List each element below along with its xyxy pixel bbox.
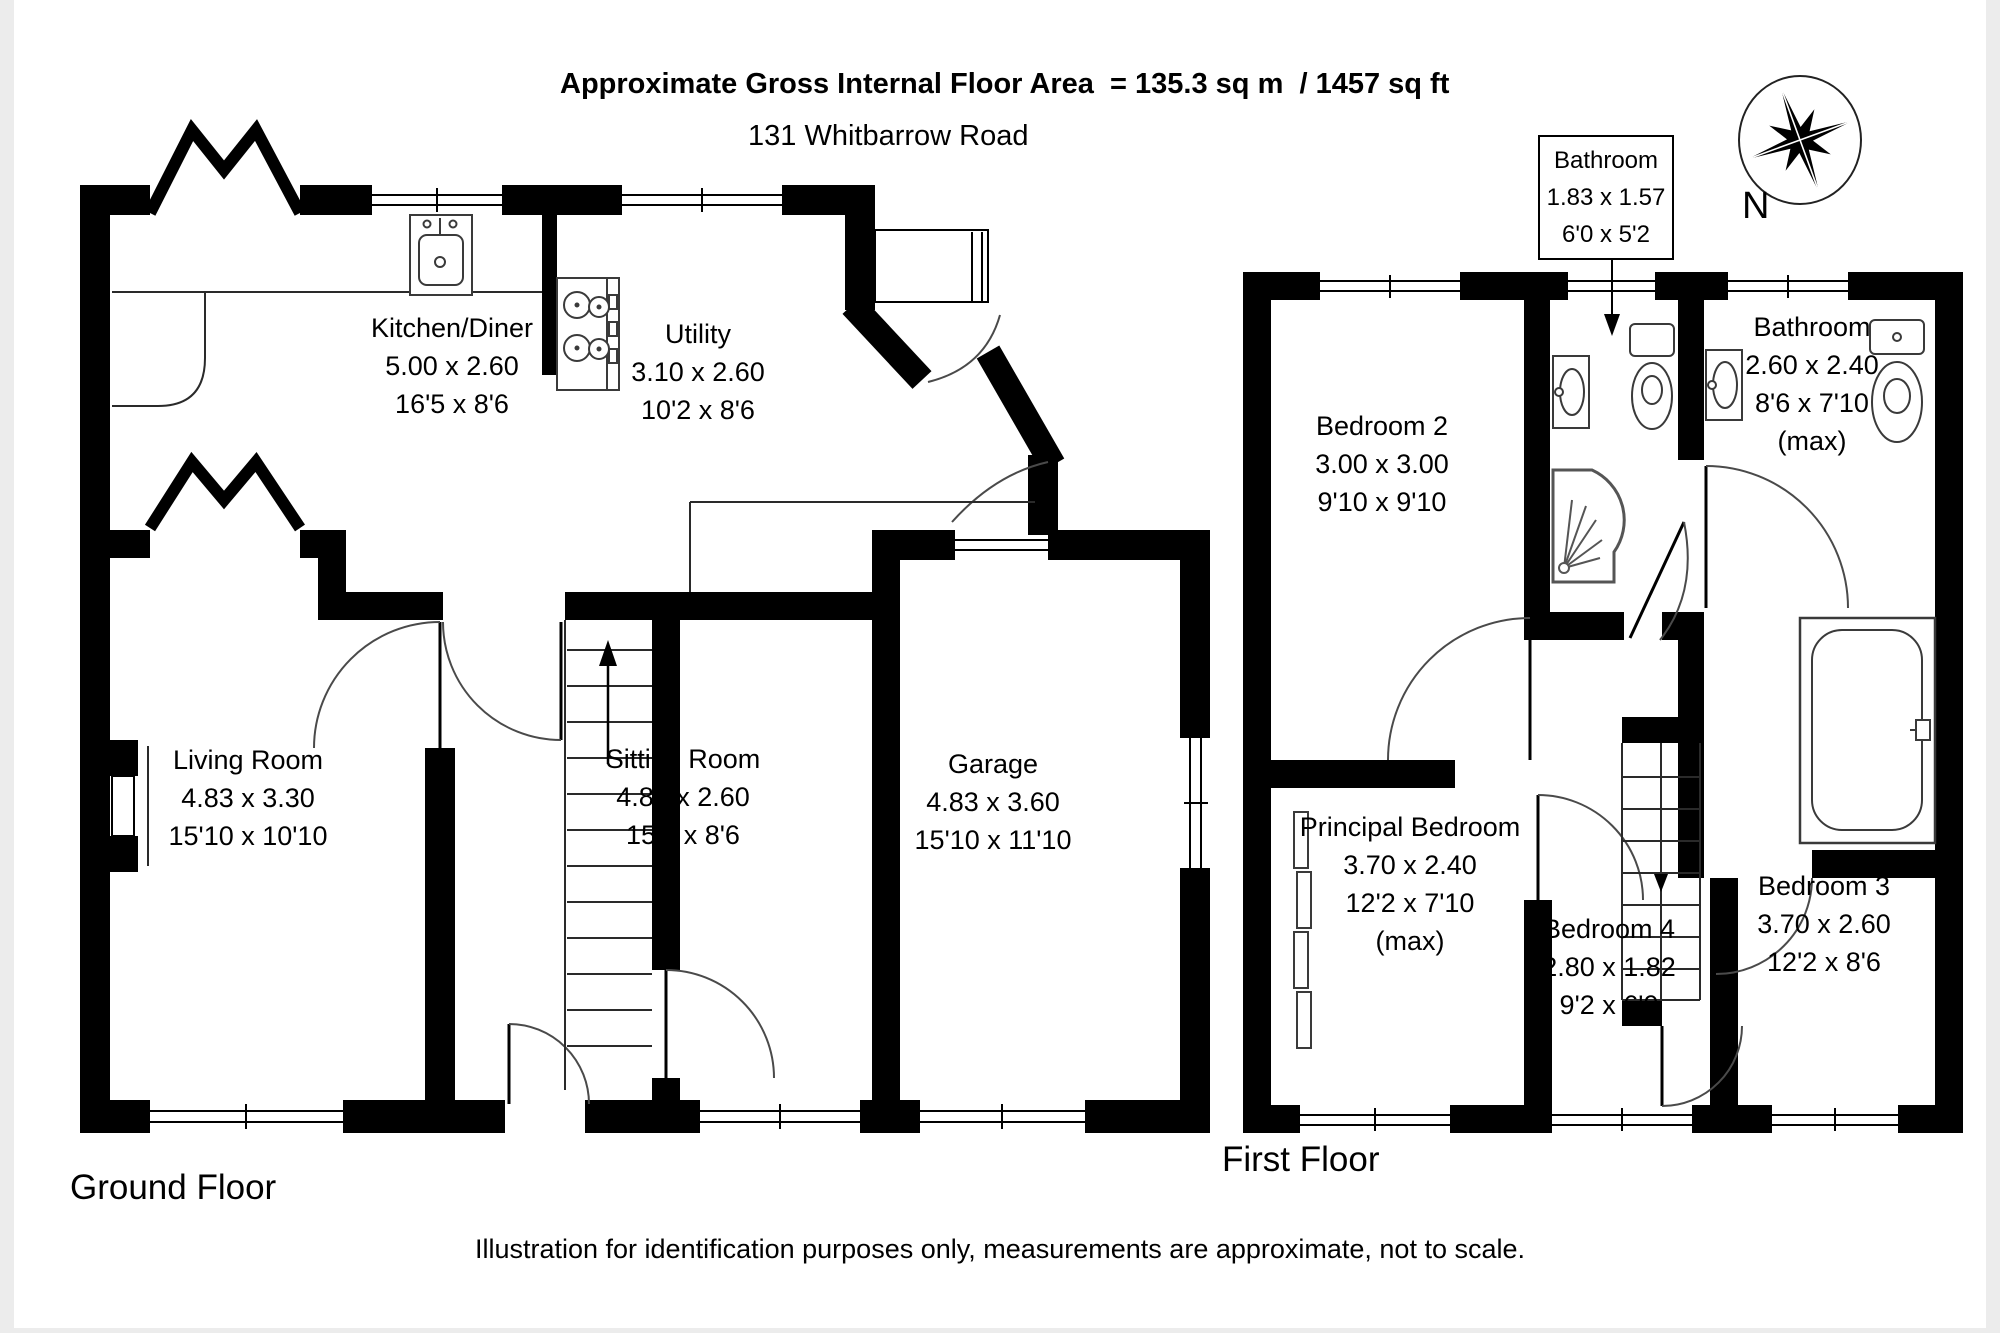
room-label-utility: Utility 3.10 x 2.60 10'2 x 8'6 — [631, 315, 765, 429]
ground-doors — [314, 622, 774, 1104]
bathroom-callout: Bathroom 1.83 x 1.57 6'0 x 5'2 — [1538, 135, 1674, 260]
room-dim-metric: 4.83 x 3.30 — [169, 779, 328, 817]
room-dim-metric: 3.70 x 2.60 — [1757, 905, 1891, 943]
room-dim-imperial: 10'2 x 8'6 — [631, 391, 765, 429]
room-dim-metric: 3.10 x 2.60 — [631, 353, 765, 391]
room-name: Bathroom — [1540, 142, 1672, 179]
kitchen-hall-door — [443, 622, 561, 740]
bathroom-callout-leader — [1604, 256, 1620, 336]
principal-bedroom-door — [1538, 795, 1643, 900]
room-dim-metric: 4.80 x 2.60 — [606, 778, 761, 816]
bathtub — [1800, 618, 1935, 843]
property-address: 131 Whitbarrow Road — [748, 120, 1028, 153]
utility-window — [622, 188, 782, 212]
north-label: N — [1742, 185, 1769, 227]
principal-bedroom-window — [1300, 1108, 1450, 1131]
room-name: Bedroom 3 — [1757, 867, 1891, 905]
bathroom-window — [1728, 275, 1848, 298]
living-room-window — [150, 1104, 343, 1129]
room-dim-qualifier: (max) — [1745, 422, 1879, 460]
bathroom-door — [1706, 466, 1848, 608]
garage-top-window — [955, 540, 1048, 550]
room-name: Bedroom 4 — [1542, 910, 1676, 948]
room-dim-imperial: 12'2 x 8'6 — [1757, 943, 1891, 981]
room-dim-imperial: 16'5 x 8'6 — [371, 385, 533, 423]
room-label-sitting-room: Sitting Room 4.80 x 2.60 15'9 x 8'6 — [606, 740, 761, 854]
bedroom4-window — [1552, 1108, 1692, 1131]
room-name: Sitting Room — [606, 740, 761, 778]
ground-staircase — [565, 620, 652, 1090]
garage-side-window — [1184, 738, 1208, 868]
room-name: Living Room — [169, 741, 328, 779]
compass-rose: N — [1739, 76, 1861, 227]
page-title: Approximate Gross Internal Floor Area = … — [560, 68, 1449, 101]
floorplan-canvas: N Approximate Gross Internal Floor Area … — [0, 0, 2000, 1333]
room-dim-metric: 2.60 x 2.40 — [1745, 346, 1879, 384]
sitting-room-window — [700, 1104, 860, 1129]
room-name: Kitchen/Diner — [371, 309, 533, 347]
entrance-porch — [852, 230, 1053, 522]
living-room-door — [314, 622, 440, 748]
room-name: Bedroom 2 — [1315, 407, 1449, 445]
shower-room-sink — [1553, 356, 1589, 428]
room-dim-qualifier: (max) — [1300, 922, 1521, 960]
room-dim-metric: 3.00 x 3.00 — [1315, 445, 1449, 483]
kitchen-hob — [557, 278, 619, 390]
bedroom2-door — [1388, 618, 1530, 760]
room-name: Garage — [915, 745, 1072, 783]
utility-counter — [690, 502, 1035, 592]
room-dim-metric: 3.70 x 2.40 — [1300, 846, 1521, 884]
room-dim-metric: 5.00 x 2.60 — [371, 347, 533, 385]
bay-window-living-room — [150, 462, 300, 528]
room-name: Utility — [631, 315, 765, 353]
rear-door — [509, 1024, 589, 1104]
kitchen-window — [372, 188, 502, 212]
room-dim-imperial: 15'10 x 11'10 — [915, 821, 1072, 859]
bathroom-sink — [1706, 350, 1742, 420]
room-label-principal-bedroom: Principal Bedroom 3.70 x 2.40 12'2 x 7'1… — [1300, 808, 1521, 960]
room-dim-imperial: 6'0 x 5'2 — [1540, 216, 1672, 253]
room-dim-metric: 4.83 x 3.60 — [915, 783, 1072, 821]
stairs-down-arrow — [1654, 874, 1668, 892]
living-room-fireplace — [110, 740, 148, 872]
room-label-living-room: Living Room 4.83 x 3.30 15'10 x 10'10 — [169, 741, 328, 855]
bedroom2-window — [1320, 275, 1460, 298]
ground-floor-plan — [80, 130, 1210, 1133]
room-label-bedroom-4: Bedroom 4 2.80 x 1.82 9'2 x 6'0 — [1542, 910, 1676, 1024]
bedroom3-window — [1772, 1108, 1898, 1131]
room-dim-metric: 2.80 x 1.82 — [1542, 948, 1676, 986]
room-dim-imperial: 15'9 x 8'6 — [606, 816, 761, 854]
shower-room-toilet — [1630, 324, 1674, 429]
kitchen-sink — [410, 215, 472, 295]
garage-door-window — [920, 1104, 1085, 1129]
room-label-bedroom-3: Bedroom 3 3.70 x 2.60 12'2 x 8'6 — [1757, 867, 1891, 981]
room-label-bathroom: Bathroom 2.60 x 2.40 8'6 x 7'10 (max) — [1745, 308, 1879, 460]
room-name: Bathroom — [1745, 308, 1879, 346]
floorplan-drawing: N — [0, 0, 2000, 1333]
disclaimer-text: Illustration for identification purposes… — [0, 1234, 2000, 1265]
room-dim-imperial: 12'2 x 7'10 — [1300, 884, 1521, 922]
room-dim-imperial: 9'2 x 6'0 — [1542, 986, 1676, 1024]
room-dim-imperial: 9'10 x 9'10 — [1315, 483, 1449, 521]
ground-floor-label: Ground Floor — [70, 1168, 276, 1208]
room-label-garage: Garage 4.83 x 3.60 15'10 x 11'10 — [915, 745, 1072, 859]
room-dim-imperial: 8'6 x 7'10 — [1745, 384, 1879, 422]
corner-shower — [1553, 470, 1624, 582]
bay-window-kitchen — [150, 130, 300, 213]
sitting-room-door — [666, 970, 774, 1078]
room-label-bedroom-2: Bedroom 2 3.00 x 3.00 9'10 x 9'10 — [1315, 407, 1449, 521]
room-label-kitchen-diner: Kitchen/Diner 5.00 x 2.60 16'5 x 8'6 — [371, 309, 533, 423]
room-dim-imperial: 15'10 x 10'10 — [169, 817, 328, 855]
room-dim-metric: 1.83 x 1.57 — [1540, 179, 1672, 216]
first-floor-label: First Floor — [1222, 1140, 1380, 1180]
room-name: Principal Bedroom — [1300, 808, 1521, 846]
